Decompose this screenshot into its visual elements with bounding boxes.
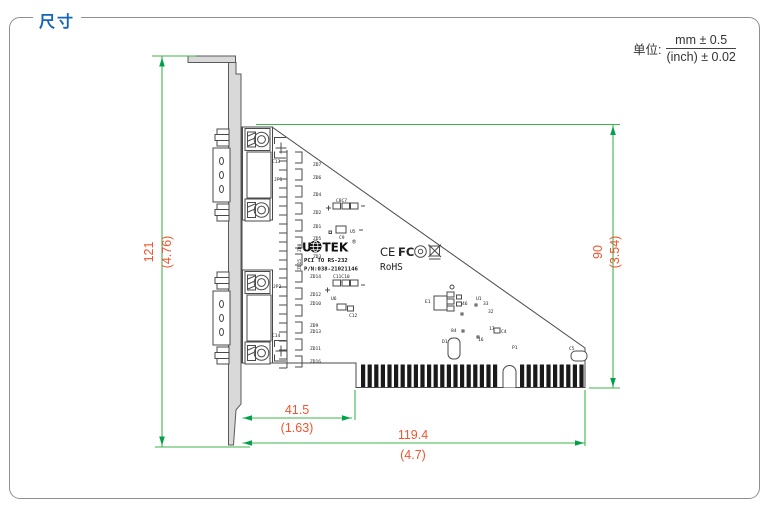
dim-edge-offset-in: (1.63) — [281, 421, 314, 435]
db9-side-view — [213, 129, 230, 221]
ce-mark: CE — [380, 245, 395, 259]
unit-fraction: mm ± 0.5 (inch) ± 0.02 — [666, 33, 735, 65]
component-label: ZD14 — [310, 274, 321, 280]
component-label: U5 — [350, 229, 356, 235]
dim-edge-offset-mm: 41.5 — [285, 403, 309, 417]
product-line: PCI TO RS-232 — [304, 258, 348, 264]
component-label: P1 — [512, 345, 518, 351]
db9-top-view — [243, 127, 273, 221]
component-label: ZD5 — [313, 236, 322, 242]
unit-label: 单位: — [633, 39, 661, 58]
component-label: ZD1 — [313, 224, 322, 230]
component-label: ZD11 — [310, 346, 321, 352]
dim-board-length-in: (4.7) — [400, 448, 426, 462]
component-label: ZD10 — [310, 301, 321, 307]
component-label: C8C7 — [336, 198, 347, 204]
part-number: P/N:038-21021146 — [304, 267, 359, 273]
dim-bracket-height-in: (4.76) — [160, 236, 174, 269]
dim-board-length-mm: 119.4 — [398, 428, 428, 442]
component-label: C4 — [501, 329, 507, 335]
unit-note: 单位: mm ± 0.5 (inch) ± 0.02 — [633, 33, 736, 65]
component-label: JP2 — [273, 284, 282, 290]
component-label: U6 — [331, 296, 337, 302]
unit-inch: (inch) ± 0.02 — [666, 49, 735, 64]
diode-d1 — [448, 338, 460, 359]
logo-reg: ® — [352, 239, 356, 246]
component-label: ZD13 — [310, 329, 321, 335]
component-label: ZD8 — [297, 243, 303, 252]
component-label: 84 — [451, 328, 457, 334]
dimension-figure: 尺寸 单位: mm ± 0.5 (inch) ± 0.02 — [0, 0, 770, 507]
component-label: C14 — [272, 333, 281, 339]
component-label: ZD15 — [297, 259, 303, 270]
cap-c5 — [571, 351, 587, 361]
component-label: JP1 — [274, 177, 283, 183]
component-label: ZD3 — [313, 254, 322, 260]
component-label: ZD2 — [313, 210, 322, 216]
unit-mm: mm ± 0.5 — [666, 33, 735, 49]
db9-side-view-2 — [213, 272, 230, 364]
component-label: ZD6 — [313, 175, 322, 181]
dim-bracket-height-mm: 121 — [142, 242, 156, 263]
component-label: 17 — [489, 326, 495, 332]
component-label: ZD7 — [313, 162, 322, 168]
component-label: ZD12 — [310, 292, 321, 298]
bracket — [188, 56, 241, 445]
component-label: ZD9 — [310, 323, 319, 329]
rohs-text: RoHS — [380, 262, 403, 273]
component-label: C13 — [272, 159, 281, 165]
component-label: C12 — [349, 313, 358, 319]
component-label: C11C10 — [333, 274, 350, 280]
component-label: C9 — [339, 235, 345, 241]
component-label: 46 — [462, 301, 468, 307]
fcc-mark: FC — [398, 245, 414, 259]
edge-key-notch — [503, 366, 516, 388]
component-label: E1 — [425, 299, 431, 305]
component-label: U1 — [476, 296, 482, 302]
dim-board-height-in: (3.54) — [608, 236, 622, 269]
component-label: ZD16 — [310, 359, 321, 365]
component-label: 16 — [478, 337, 484, 343]
component-label: D1 — [442, 339, 448, 345]
pcb-drawing: U TEK ® PCI TO RS-232 P/N:038-21021146 C… — [0, 0, 770, 507]
dim-board-height-mm: 90 — [591, 245, 605, 259]
logo-tek: TEK — [323, 241, 349, 255]
component-label: C5 — [569, 346, 575, 352]
component-label: 32 — [488, 309, 494, 315]
component-label: 33 — [483, 301, 489, 307]
db9-top-view-2 — [243, 270, 273, 364]
component-label: ZD4 — [313, 192, 322, 198]
page-title: 尺寸 — [33, 8, 81, 32]
globe-icon — [310, 241, 322, 253]
